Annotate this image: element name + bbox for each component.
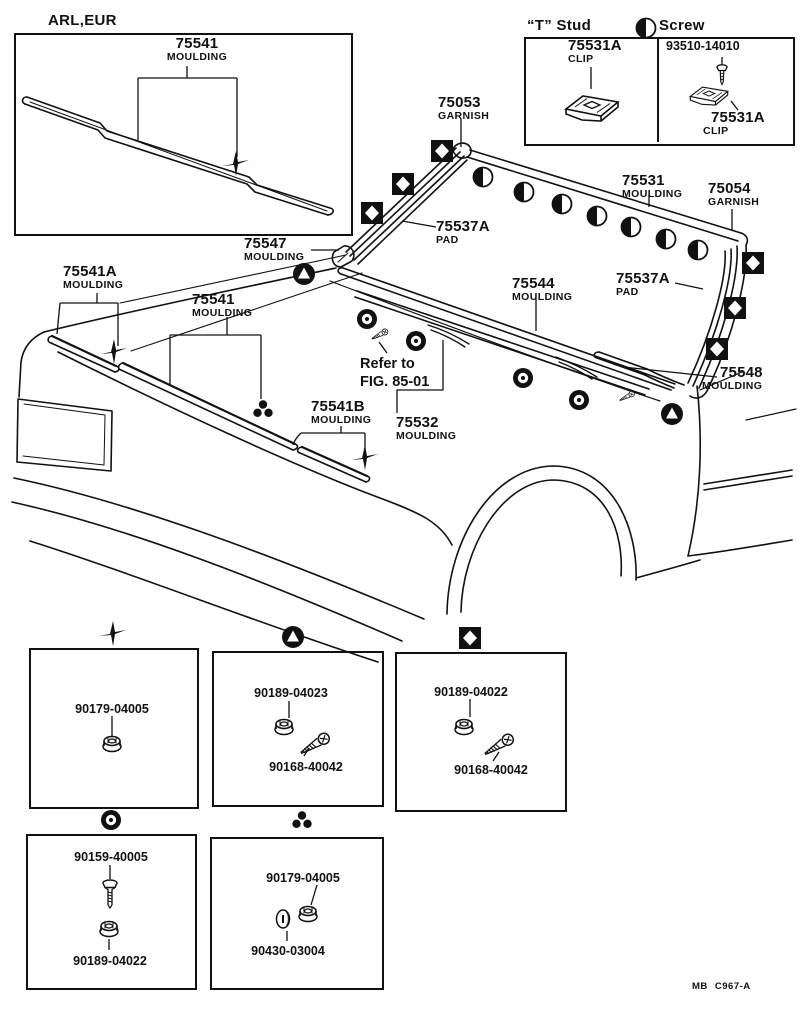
- label-75054: 75054 GARNISH: [708, 181, 759, 209]
- box3-symbol: [459, 627, 481, 649]
- screw-legend-title: Screw: [659, 17, 705, 34]
- box5-part-number-2: 90430-03004: [251, 944, 325, 958]
- box5-part-number-1: 90179-04005: [266, 871, 340, 885]
- label-75053: 75053 GARNISH: [438, 95, 489, 123]
- label-75537A-left: 75537A PAD: [436, 219, 490, 247]
- screw-legend-icon: [637, 19, 656, 38]
- inset-region-label: ARL,EUR: [48, 12, 117, 29]
- parts-catalog-page: ARL,EUR 75541 MOULDING “T” Stud Screw 75…: [0, 0, 800, 1010]
- box4-part-number-2: 90189-04022: [73, 954, 147, 968]
- stud-clip-label: 75531A CLIP: [568, 38, 622, 66]
- label-75532: 75532 MOULDING: [396, 415, 456, 443]
- fastener-box-3: [395, 652, 567, 812]
- refer-note: Refer to FIG. 85-01: [360, 355, 429, 391]
- fastener-box-1: [29, 648, 199, 809]
- box2-symbol: [282, 626, 304, 648]
- label-75541A: 75541A MOULDING: [63, 264, 123, 292]
- box1-part-number: 90179-04005: [75, 702, 149, 716]
- screw-clip-label: 75531A CLIP: [703, 110, 765, 138]
- label-75547: 75547 MOULDING: [244, 236, 304, 264]
- label-75537A-right: 75537A PAD: [616, 271, 670, 299]
- legend-screw-number: 93510-14010: [666, 39, 740, 53]
- stud-legend-title: “T” Stud: [527, 17, 591, 34]
- box4-symbol: [101, 810, 121, 830]
- box5-symbol: [292, 811, 311, 828]
- fastener-box-5: [210, 837, 384, 990]
- box3-part-number-1: 90189-04022: [434, 685, 508, 699]
- box3-part-number-2: 90168-40042: [454, 763, 528, 777]
- label-75531: 75531 MOULDING: [622, 173, 682, 201]
- label-75548: 75548 MOULDING: [702, 365, 763, 393]
- label-75541B: 75541B MOULDING: [311, 399, 371, 427]
- legend-divider: [657, 37, 659, 142]
- box2-part-number-2: 90168-40042: [269, 760, 343, 774]
- label-75541: 75541 MOULDING: [192, 292, 252, 320]
- fiche-code: MB C967-A: [692, 981, 751, 992]
- box2-part-number-1: 90189-04023: [254, 686, 328, 700]
- box1-symbol: [99, 621, 126, 646]
- box4-part-number-1: 90159-40005: [74, 850, 148, 864]
- fastener-box-2: [212, 651, 384, 807]
- inset-part-label: 75541 MOULDING: [167, 36, 227, 64]
- label-75544: 75544 MOULDING: [512, 276, 572, 304]
